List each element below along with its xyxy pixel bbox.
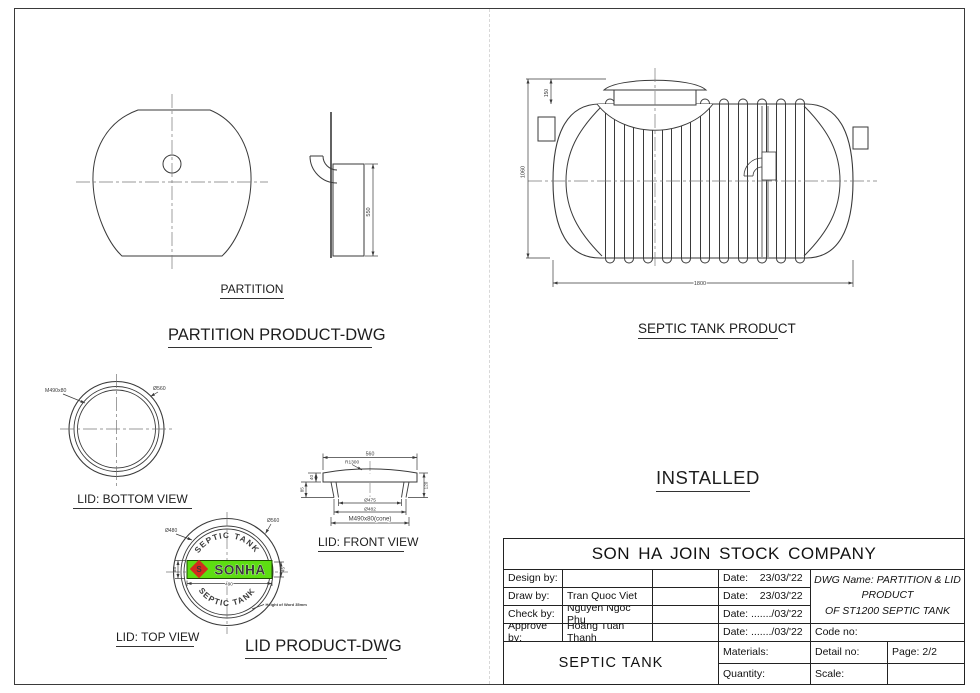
materials-cell: Materials: [718, 641, 810, 663]
empty-cell [887, 663, 964, 685]
dim-88: 88 [172, 567, 177, 573]
page-no-cell: Page: 2/2 [887, 641, 964, 663]
check-date: Date: ......./03/'22 [718, 605, 810, 623]
code-no-cell: Code no: [810, 623, 964, 641]
dwg-name-line3: OF ST1200 SEPTIC TANK [825, 604, 950, 619]
dim-r1300: R1300 [345, 460, 359, 466]
dim-1060: 1060 [521, 166, 527, 178]
company-name: SON HA JOIN STOCK COMPANY [504, 539, 964, 569]
sonha-diamond-letter: S [196, 565, 202, 574]
dim-1800: 1800 [694, 281, 706, 287]
dim-475: Ø475 [364, 498, 376, 504]
partition-drawing: 550 [60, 70, 400, 360]
dim-outer-dia: Ø560 [153, 386, 166, 392]
quantity-cell: Quantity: [718, 663, 810, 685]
dim-560: 560 [366, 452, 375, 458]
title-block: SON HA JOIN STOCK COMPANY Design by: Dat… [503, 538, 965, 685]
word-height-note: Height of Word 35mm [266, 602, 308, 607]
draw-by-label: Draw by: [504, 587, 562, 605]
installed-label: INSTALLED [656, 467, 750, 492]
approve-by-blank [652, 623, 718, 641]
inlet-stub [538, 117, 555, 141]
partition-heading: PARTITION PRODUCT-DWG [168, 326, 372, 348]
approve-by-name: Hoang Tuan Thanh [562, 623, 652, 641]
partition-side-box [333, 164, 364, 256]
partition-centerlines [76, 94, 268, 270]
design-date: Date: 23/03/'22 [718, 569, 810, 587]
dim-550: 550 [366, 207, 372, 216]
check-by-blank [652, 605, 718, 623]
sonha-logo-text: SONHA [214, 563, 265, 578]
product-name-cell: SEPTIC TANK [504, 641, 718, 685]
dim-cone: M490x80(cone) [349, 516, 392, 523]
lid-top-drawing: SEPTIC TANK SEPTIC TANK S SONHA 88 45 49… [110, 505, 345, 640]
dim-482: Ø482 [364, 507, 376, 513]
check-by-name: Nguyen Ngoc Phu [562, 605, 652, 623]
septic-tank-heading: SEPTIC TANK PRODUCT [638, 321, 778, 339]
dim-150: 150 [544, 89, 550, 98]
approve-by-label: Approve by: [504, 623, 562, 641]
check-by-label: Check by: [504, 605, 562, 623]
partition-caption: PARTITION [220, 282, 284, 299]
design-by-name [562, 569, 652, 587]
dwg-name-line1: DWG Name: PARTITION & LID [814, 573, 961, 588]
dwg-name-cell: DWG Name: PARTITION & LID PRODUCT OF ST1… [810, 569, 964, 623]
draw-by-blank [652, 587, 718, 605]
draw-date: Date: 23/03/'22 [718, 587, 810, 605]
outlet-stub [853, 127, 868, 149]
dim-45: 45 [281, 567, 286, 573]
design-by-blank [652, 569, 718, 587]
dim-inner-dia: Ø480 [165, 528, 177, 534]
detail-no-cell: Detail no: [810, 641, 887, 663]
dwg-name-line2: PRODUCT [862, 588, 914, 603]
draw-by-name: Tran Quoc Viet [562, 587, 652, 605]
lid-top-caption: LID: TOP VIEW [116, 630, 194, 647]
dim-85: 85 [300, 487, 305, 493]
lid-product-heading: LID PRODUCT-DWG [245, 637, 387, 659]
drawing-sheet: 550 PARTITION PARTITION PRODUCT-DWG [0, 0, 980, 693]
dim-thread: M490x80 [45, 388, 66, 394]
dim-40: 40 [309, 475, 314, 481]
scale-cell: Scale: [810, 663, 887, 685]
dim-120: 120 [424, 481, 429, 489]
septic-tank-drawing: 1060 150 1800 [515, 55, 935, 345]
dim-outer-dia: Ø560 [267, 518, 279, 524]
dim-490: 490 [225, 582, 233, 587]
approve-date: Date: ......./03/'22 [718, 623, 810, 641]
design-by-label: Design by: [504, 569, 562, 587]
